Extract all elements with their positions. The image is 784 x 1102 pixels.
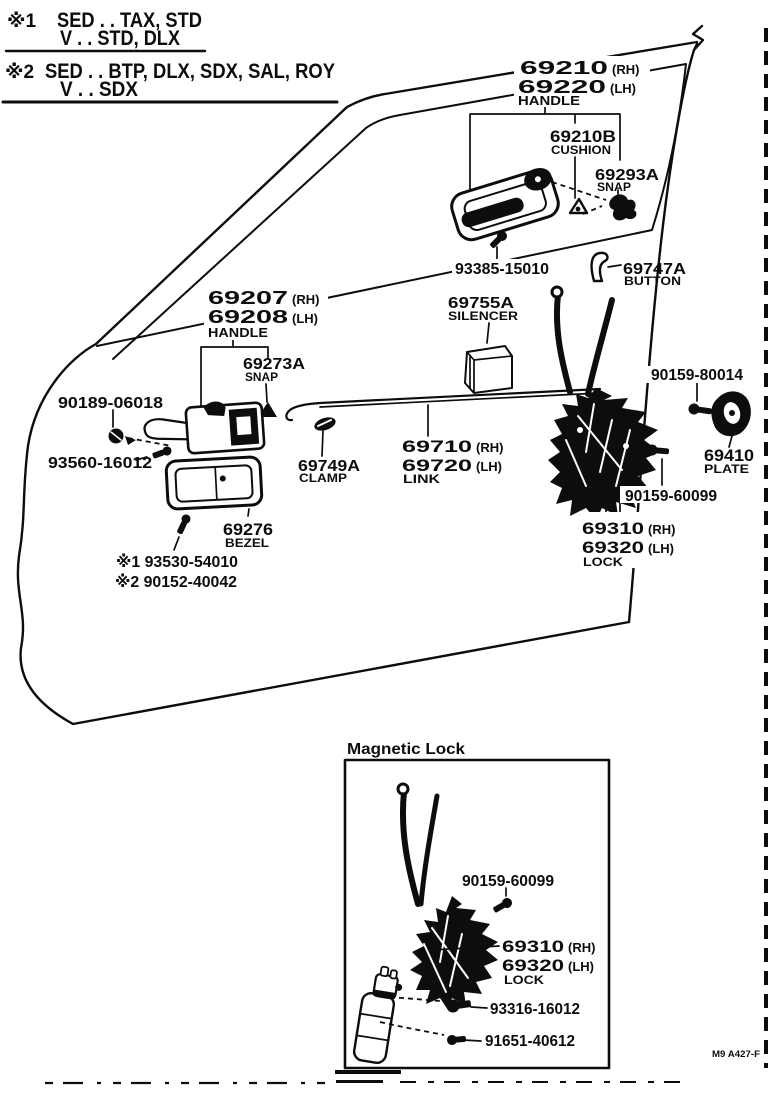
bezel-leader <box>248 509 249 516</box>
label-snap-inner-name: SNAP <box>245 372 278 384</box>
label-link-num-lh: 69720 <box>402 456 472 475</box>
label-inside-handle-num-rh: 69207 <box>208 288 288 308</box>
bezel-inner <box>175 465 253 502</box>
page-footer-code: M9 A427-F <box>712 1049 761 1059</box>
label-lock-num-lh: 69320 <box>582 538 644 557</box>
screw-80014-drawing <box>688 403 713 417</box>
lock-detail-hole-1 <box>577 427 583 433</box>
mag-lock-assembly-drawing <box>410 896 498 1010</box>
snap-inner-leader <box>266 384 267 402</box>
label-plate-num: 69410 <box>704 446 754 465</box>
label-outside-handle-num-rh: 69210 <box>520 58 608 78</box>
lock-rod-1 <box>557 295 570 392</box>
label-link-lh: (LH) <box>476 459 502 474</box>
label-mag-lock-lh: (LH) <box>568 959 594 974</box>
label-bezel-name: BEZEL <box>225 538 269 550</box>
label-silencer-num: 69755A <box>448 295 515 312</box>
legend-note2-marker: ※2 <box>5 62 34 83</box>
page-edge-bar-1 <box>335 1070 401 1074</box>
inside-handle-slot <box>236 416 251 435</box>
label-silencer-name: SILENCER <box>448 311 519 323</box>
link-rod <box>286 389 600 420</box>
snap-outer-part <box>609 194 636 220</box>
label-inside-handle-rh: (RH) <box>292 292 319 307</box>
label-clamp-name: CLAMP <box>299 473 347 485</box>
legend-note2-line2: V . . SDX <box>60 78 138 101</box>
screw-80014-shaft <box>697 406 713 414</box>
lock-rod-2 <box>588 300 612 394</box>
clamp-part <box>313 415 338 433</box>
label-link-num-rh: 69710 <box>402 437 472 456</box>
label-screw-91651: 91651-40612 <box>485 1033 575 1050</box>
bezel-drawing <box>166 457 262 510</box>
label-lock-lh: (LH) <box>648 541 674 556</box>
label-link-rh: (RH) <box>476 440 503 455</box>
label-outside-handle-rh: (RH) <box>612 62 639 77</box>
page-edge-bar-2 <box>336 1080 383 1083</box>
mag-rod-eyelet <box>398 784 408 794</box>
parts-diagram: ※1 SED . . TAX, STD V . . STD, DLX ※2 SE… <box>0 0 784 1102</box>
label-variant-screw-2: ※2 90152-40042 <box>115 573 237 591</box>
silencer-leader <box>487 323 489 343</box>
label-lock-rh: (RH) <box>648 522 675 537</box>
mag-rod-2 <box>421 796 437 904</box>
label-grommet-90189: 90189-06018 <box>58 395 163 412</box>
solenoid-drawing <box>353 964 405 1065</box>
label-inside-handle-name: HANDLE <box>208 325 268 340</box>
mag-screw-60099-drawing <box>492 896 514 915</box>
label-button-name: BUTTON <box>624 276 681 288</box>
label-lock-name: LOCK <box>583 557 624 569</box>
variant-screw-shaft <box>177 520 188 534</box>
lock-detail-hole-2 <box>623 443 629 449</box>
window-opening-line <box>97 64 686 359</box>
label-plate-name: PLATE <box>704 464 749 476</box>
label-screw-93316: 93316-16012 <box>490 1001 580 1018</box>
mag-rod-1 <box>403 792 418 904</box>
label-mag-screw-60099: 90159-60099 <box>462 873 554 890</box>
label-mag-lock-num-rh: 69310 <box>502 937 564 956</box>
screw-60099-shaft <box>655 447 669 454</box>
label-cushion-num: 69210B <box>550 127 616 146</box>
legend-note1-line2: V . . STD, DLX <box>60 27 180 50</box>
plate-post <box>729 410 735 416</box>
screw-93560-drawing <box>151 445 172 460</box>
parts-catalog-page: ※1 SED . . TAX, STD V . . STD, DLX ※2 SE… <box>0 0 784 1102</box>
variant-screw-drawing <box>175 513 192 535</box>
label-screw-93385: 93385-15010 <box>455 261 549 278</box>
solenoid-nub-2 <box>390 970 397 979</box>
button-leader <box>608 265 621 267</box>
clamp-leader <box>322 431 323 456</box>
label-variant-screw-1: ※1 93530-54010 <box>116 553 238 571</box>
label-inside-handle-num-lh: 69208 <box>208 307 288 327</box>
label-bezel-num: 69276 <box>223 520 273 539</box>
label-snap-outer-name: SNAP <box>597 182 631 194</box>
cushion-tip <box>576 207 581 212</box>
grommet-arrowhead <box>125 436 136 445</box>
silencer-box <box>465 346 512 393</box>
screw-91651-leader <box>463 1040 481 1041</box>
label-screw-60099: 90159-60099 <box>625 488 717 505</box>
screw-93316-leader <box>471 1007 487 1008</box>
label-outside-handle-name: HANDLE <box>518 93 580 108</box>
label-inside-handle-lh: (LH) <box>292 311 318 326</box>
outside-handle-drawing <box>448 165 563 244</box>
solenoid-body <box>353 992 395 1064</box>
label-lock-num-rh: 69310 <box>582 519 644 538</box>
label-cushion-name: CUSHION <box>551 145 611 157</box>
label-outside-handle-lh: (LH) <box>610 81 636 96</box>
label-mag-lock-name: LOCK <box>504 975 545 987</box>
label-mag-lock-num-lh: 69320 <box>502 956 564 975</box>
lock-rod-eyelet <box>552 287 562 297</box>
label-screw-80014: 90159-80014 <box>651 367 743 384</box>
button-part <box>592 253 608 281</box>
label-link-name: LINK <box>403 474 441 486</box>
magnetic-lock-title: Magnetic Lock <box>347 741 465 758</box>
label-snap-inner-num: 69273A <box>243 356 305 373</box>
screw-93560-shaft <box>152 449 165 459</box>
label-screw-93560: 93560-16012 <box>48 455 152 472</box>
label-mag-lock-rh: (RH) <box>568 940 595 955</box>
solenoid-nub-1 <box>380 966 388 976</box>
legend-note1-marker: ※1 <box>7 11 36 32</box>
variant-screw-leader <box>174 537 179 550</box>
